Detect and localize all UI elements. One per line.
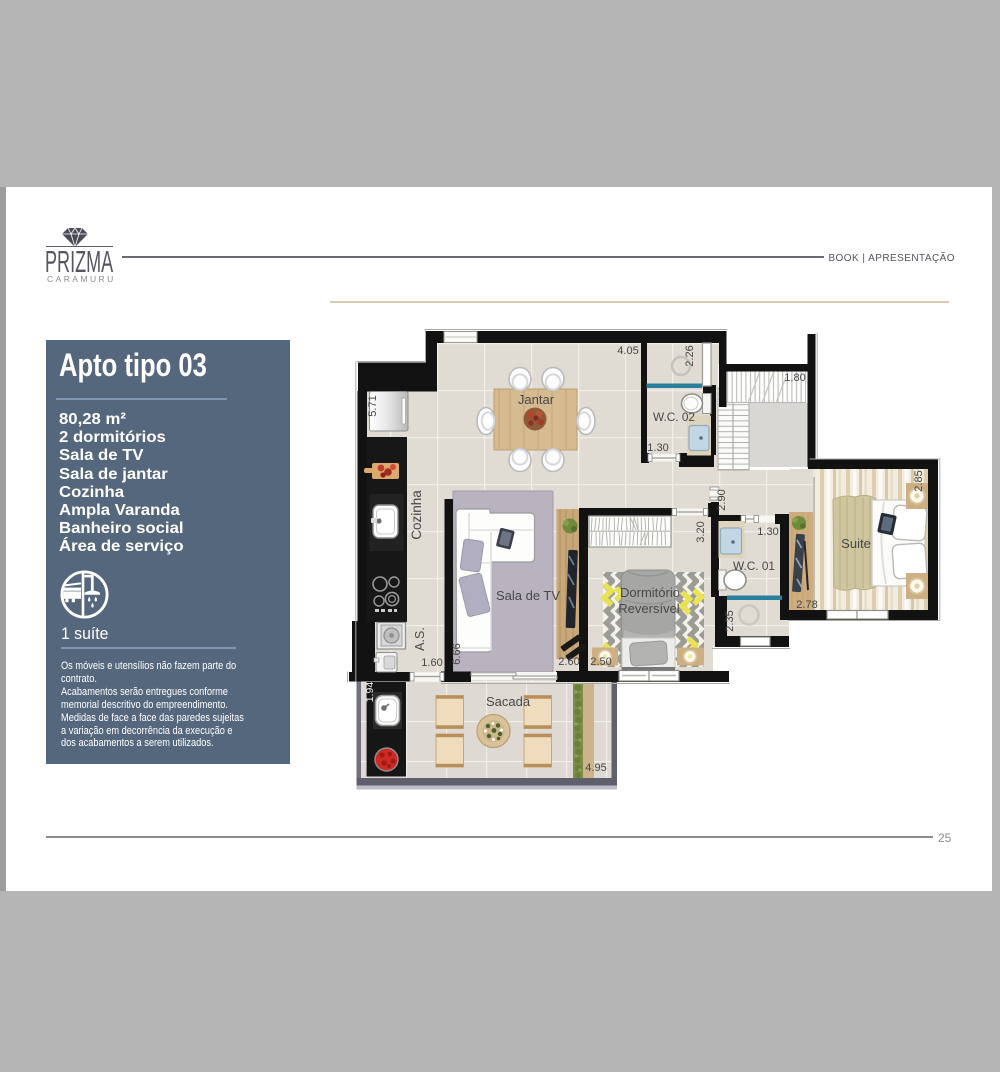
svg-text:1.30: 1.30: [647, 442, 668, 454]
svg-text:Jantar: Jantar: [518, 392, 555, 407]
svg-text:1.60: 1.60: [421, 657, 442, 669]
svg-text:W.C. 02: W.C. 02: [653, 410, 695, 424]
svg-text:4.95: 4.95: [585, 762, 606, 774]
svg-text:Reversível: Reversível: [618, 601, 680, 616]
svg-text:2.85: 2.85: [913, 470, 925, 491]
svg-text:2.26: 2.26: [684, 345, 696, 366]
svg-text:Cozinha: Cozinha: [409, 490, 424, 540]
svg-text:Dormitório: Dormitório: [620, 585, 680, 600]
svg-text:3.20: 3.20: [695, 521, 707, 542]
svg-text:1.30: 1.30: [757, 526, 778, 538]
svg-text:5.71: 5.71: [367, 395, 379, 416]
svg-text:W.C. 01: W.C. 01: [733, 559, 775, 573]
svg-text:2.35: 2.35: [724, 610, 736, 631]
svg-text:2.90: 2.90: [716, 489, 728, 510]
svg-text:1.94: 1.94: [364, 682, 376, 703]
svg-text:2.60: 2.60: [558, 656, 579, 668]
svg-text:4.05: 4.05: [617, 345, 638, 357]
svg-text:6.66: 6.66: [451, 643, 463, 664]
svg-text:A.S.: A.S.: [413, 627, 427, 651]
svg-text:Suite: Suite: [841, 536, 871, 551]
svg-text:2.50: 2.50: [590, 656, 611, 668]
svg-text:2.78: 2.78: [796, 599, 817, 611]
svg-text:Sacada: Sacada: [486, 694, 531, 709]
svg-text:Sala de TV: Sala de TV: [496, 588, 560, 603]
svg-text:1.80: 1.80: [784, 372, 805, 384]
